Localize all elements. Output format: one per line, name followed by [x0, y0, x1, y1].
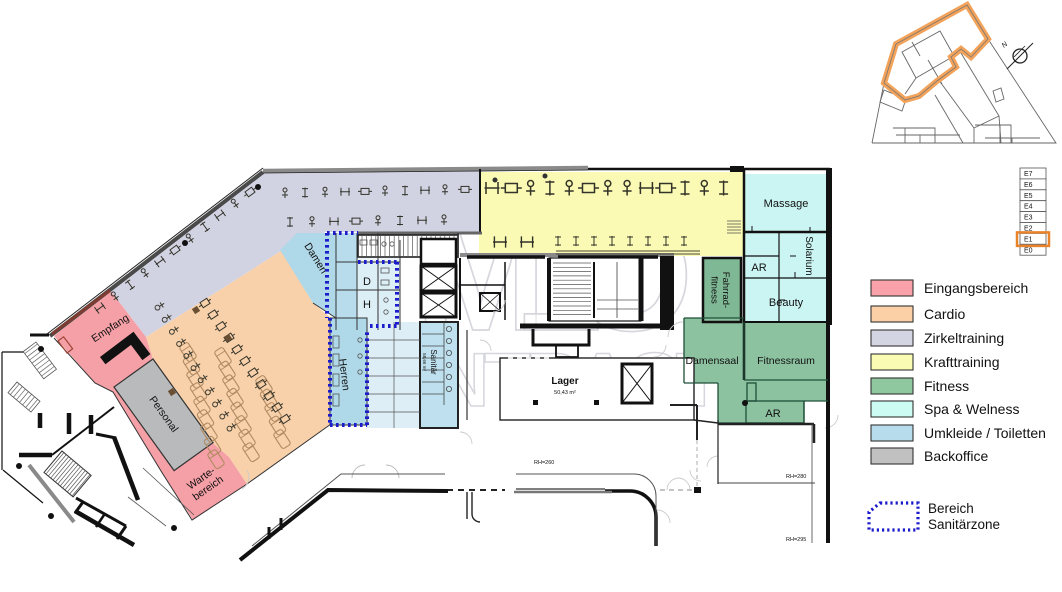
svg-text:E4: E4 [1024, 204, 1033, 211]
svg-text:Zirkeltraining: Zirkeltraining [924, 330, 1004, 346]
svg-text:Eingangsbereich: Eingangsbereich [924, 280, 1028, 296]
svg-text:E3: E3 [1024, 215, 1033, 222]
svg-text:Sanitärzone: Sanitärzone [928, 517, 1000, 532]
svg-text:Massage: Massage [764, 198, 809, 210]
svg-text:RH=260: RH=260 [534, 460, 554, 466]
svg-text:E1: E1 [1024, 236, 1033, 243]
svg-text:Damensaal: Damensaal [685, 355, 738, 367]
svg-text:Spa & Welness: Spa & Welness [924, 401, 1019, 417]
svg-text:AR: AR [765, 408, 780, 420]
svg-text:Fahrrad-: Fahrrad- [720, 272, 731, 308]
svg-text:Fitnessraum: Fitnessraum [757, 355, 815, 367]
svg-text:RH=280: RH=280 [786, 474, 806, 480]
svg-text:E5: E5 [1024, 193, 1033, 200]
svg-text:E0: E0 [1024, 247, 1033, 254]
svg-text:58,66 m²: 58,66 m² [422, 353, 427, 371]
svg-text:Cardio: Cardio [924, 306, 965, 322]
svg-text:Backoffice: Backoffice [924, 448, 989, 464]
svg-text:E6: E6 [1024, 182, 1033, 189]
svg-text:Bereich: Bereich [928, 501, 974, 516]
svg-text:Sanitär: Sanitär [429, 349, 438, 375]
svg-text:D: D [363, 276, 371, 288]
svg-text:Krafttraining: Krafttraining [924, 354, 999, 370]
svg-text:RH=295: RH=295 [786, 537, 806, 543]
svg-text:50,43 m²: 50,43 m² [554, 390, 576, 396]
svg-text:Solarium: Solarium [803, 236, 814, 275]
svg-text:Umkleide / Toiletten: Umkleide / Toiletten [924, 425, 1046, 441]
svg-text:AR: AR [751, 262, 766, 274]
svg-text:fitness: fitness [709, 276, 720, 304]
svg-text:E7: E7 [1024, 171, 1033, 178]
svg-text:H: H [363, 299, 371, 311]
svg-text:Beauty: Beauty [769, 297, 804, 309]
svg-text:Fitness: Fitness [924, 378, 969, 394]
svg-text:Lager: Lager [551, 376, 578, 387]
